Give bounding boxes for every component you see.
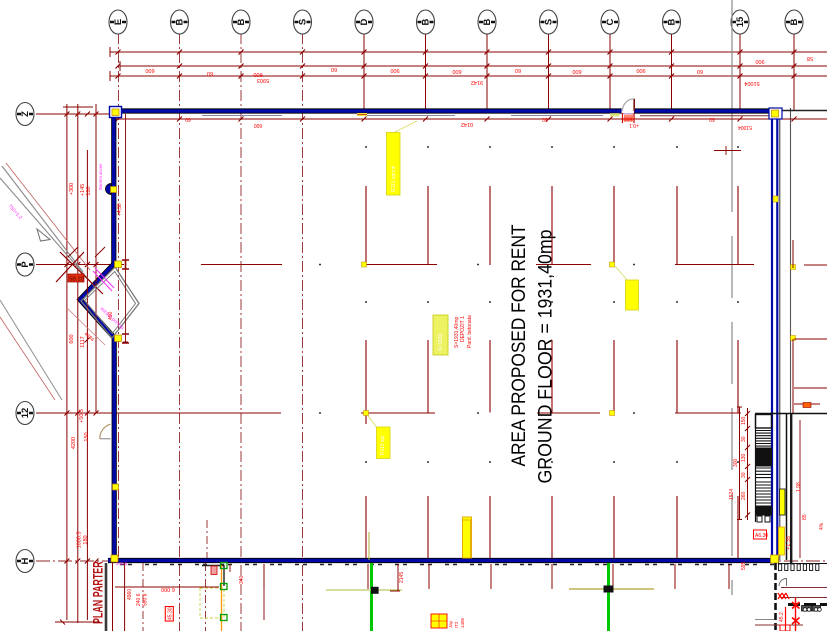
- svg-text:180: 180: [86, 186, 92, 195]
- svg-text:58: 58: [807, 55, 813, 61]
- svg-text:6 000: 6 000: [161, 586, 175, 592]
- svg-text:S: S: [544, 19, 555, 25]
- svg-text:9142: 9142: [471, 79, 483, 85]
- svg-text:R110 sprink: R110 sprink: [391, 165, 397, 192]
- svg-text:60: 60: [207, 70, 213, 76]
- svg-text:B: B: [421, 18, 432, 25]
- svg-text:GROUND FLOOR = 1931,40mp: GROUND FLOOR = 1931,40mp: [534, 230, 556, 484]
- svg-text:S: S: [298, 19, 309, 25]
- svg-text:600: 600: [145, 67, 154, 73]
- svg-text:1.98: 1.98: [796, 482, 802, 492]
- svg-text:IT2: IT2: [454, 621, 459, 628]
- svg-text:A6.30: A6.30: [755, 533, 768, 539]
- svg-text:60: 60: [709, 116, 715, 122]
- svg-text:C: C: [605, 18, 616, 25]
- svg-text:D: D: [359, 18, 370, 25]
- svg-text:150: 150: [84, 432, 90, 441]
- svg-text:12: 12: [20, 408, 31, 419]
- svg-text:4960: 4960: [127, 589, 133, 600]
- svg-text:B: B: [789, 18, 800, 25]
- svg-text:+4,50: +4,50: [117, 203, 123, 216]
- svg-text:1117: 1117: [80, 336, 86, 347]
- svg-text:Pard. betonata: Pard. betonata: [467, 315, 473, 348]
- svg-text:PLAN PARTER: PLAN PARTER: [92, 561, 106, 624]
- svg-text:180: 180: [83, 535, 89, 544]
- svg-text:45.30: 45.30: [168, 607, 174, 620]
- svg-text:260: 260: [741, 491, 747, 500]
- svg-text:4%: 4%: [819, 522, 825, 530]
- svg-text:595: 595: [741, 561, 747, 570]
- svg-text:AREA PROPOSED FOR RENT: AREA PROPOSED FOR RENT: [508, 225, 529, 467]
- svg-text:900: 900: [755, 58, 764, 64]
- svg-text:85: 85: [802, 514, 808, 520]
- svg-text:DEPOZIT 1: DEPOZIT 1: [460, 316, 466, 342]
- svg-text:60: 60: [697, 68, 703, 74]
- svg-text:60: 60: [515, 67, 521, 73]
- svg-text:S=1931: S=1931: [438, 333, 444, 351]
- svg-text:300: 300: [733, 458, 739, 467]
- svg-text:2145: 2145: [399, 572, 405, 583]
- svg-text:240.6: 240.6: [136, 593, 142, 606]
- svg-text:600: 600: [254, 122, 263, 128]
- svg-text:R110 spr: R110 spr: [380, 435, 386, 455]
- svg-text:5903: 5903: [257, 77, 269, 83]
- svg-text:600: 600: [452, 68, 461, 74]
- svg-text:B: B: [667, 18, 678, 25]
- svg-text:240,6: 240,6: [116, 561, 128, 566]
- svg-text:30: 30: [741, 472, 747, 478]
- svg-text:5B.20: 5B.20: [69, 277, 83, 283]
- svg-text:Bariera acces: Bariera acces: [98, 164, 103, 190]
- svg-text:15: 15: [735, 16, 746, 27]
- svg-text:30: 30: [741, 436, 747, 442]
- svg-text:B: B: [482, 18, 493, 25]
- svg-text:450: 450: [108, 311, 114, 320]
- svg-text:51004: 51004: [744, 80, 759, 86]
- svg-text:1524: 1524: [729, 489, 735, 500]
- svg-text:60: 60: [331, 66, 337, 72]
- svg-text:B: B: [175, 18, 186, 25]
- svg-text:590.8: 590.8: [143, 593, 149, 606]
- svg-text:Z: Z: [20, 111, 31, 117]
- svg-text:+50,5: +50,5: [79, 409, 85, 423]
- svg-text:130: 130: [741, 453, 747, 462]
- svg-text:51004: 51004: [738, 124, 752, 130]
- svg-text:150: 150: [741, 416, 747, 425]
- svg-text:900: 900: [636, 67, 645, 73]
- svg-text:1405: 1405: [460, 617, 465, 628]
- svg-text:Jay: Jay: [448, 620, 453, 628]
- svg-text:4200: 4200: [71, 437, 77, 449]
- svg-text:1008.5: 1008.5: [77, 532, 83, 549]
- svg-text:+1.35: +1.35: [786, 536, 792, 550]
- svg-text:60: 60: [542, 116, 548, 122]
- svg-text:60: 60: [185, 116, 191, 122]
- svg-text:B: B: [236, 18, 247, 25]
- svg-text:600: 600: [253, 71, 262, 77]
- svg-text:H: H: [20, 557, 31, 564]
- svg-text:600: 600: [572, 68, 581, 74]
- svg-text:E: E: [113, 19, 124, 25]
- svg-text:P: P: [20, 261, 31, 268]
- svg-text:+300: +300: [69, 183, 75, 195]
- svg-text:340: 340: [239, 575, 245, 584]
- svg-text:0142: 0142: [461, 121, 473, 127]
- svg-text:600: 600: [69, 334, 75, 343]
- svg-text:45.2: 45.2: [779, 612, 785, 622]
- svg-text:900: 900: [390, 67, 399, 73]
